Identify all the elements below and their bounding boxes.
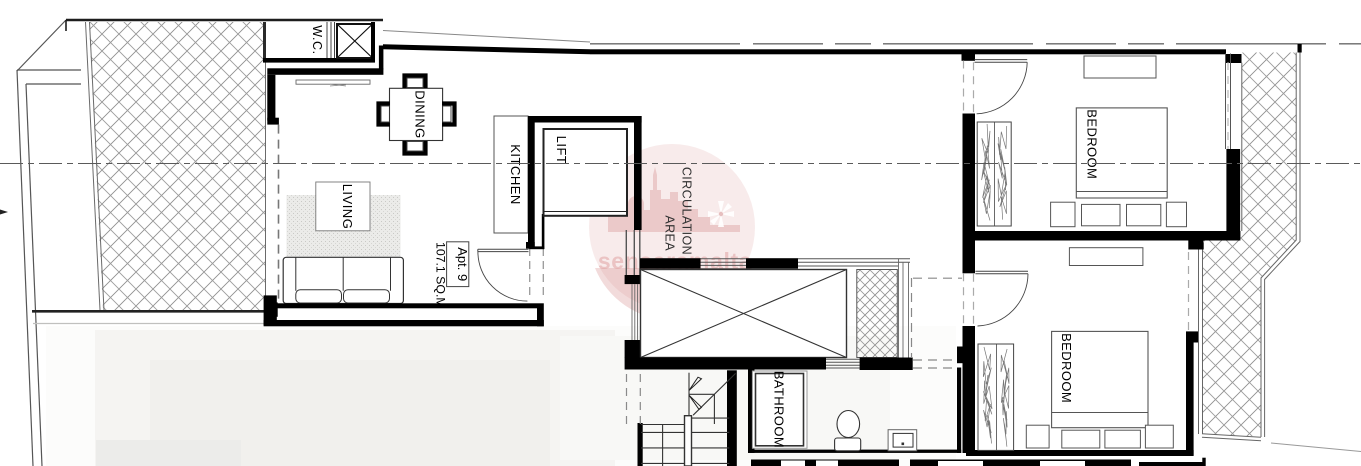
svg-text:AREA: AREA [662, 215, 676, 251]
svg-text:LIFT: LIFT [554, 136, 569, 165]
svg-text:BEDROOM: BEDROOM [1059, 333, 1074, 403]
svg-text:BEDROOM: BEDROOM [1084, 109, 1099, 179]
svg-text:BATHROOM: BATHROOM [772, 371, 787, 448]
svg-text:LIVING: LIVING [340, 184, 355, 230]
svg-text:CIRCULATION: CIRCULATION [680, 167, 694, 255]
svg-text:107.1 SQ.M: 107.1 SQ.M [434, 242, 448, 308]
svg-text:KITCHEN: KITCHEN [508, 144, 523, 205]
svg-text:DINING: DINING [413, 90, 428, 139]
svg-text:W.C.: W.C. [310, 25, 324, 54]
svg-text:Apt. 9: Apt. 9 [455, 247, 470, 281]
